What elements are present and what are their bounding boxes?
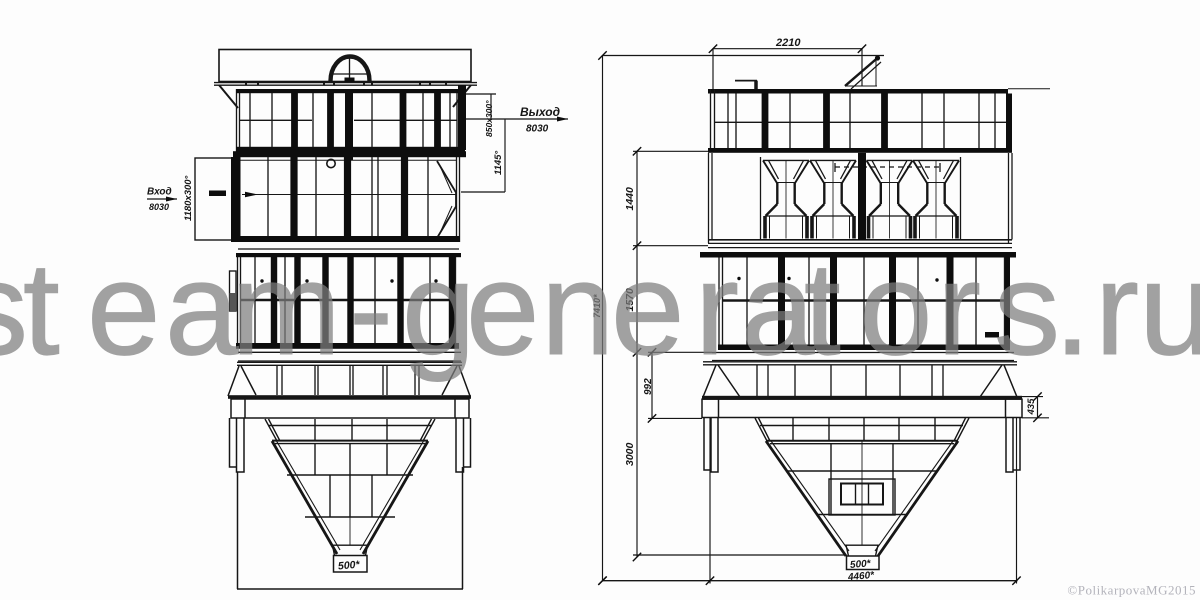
svg-text:1440: 1440 bbox=[624, 187, 636, 211]
svg-text:435: 435 bbox=[1026, 398, 1037, 416]
svg-text:©PolikarpovaMG2015: ©PolikarpovaMG2015 bbox=[1067, 583, 1196, 598]
svg-text:8030: 8030 bbox=[526, 124, 549, 135]
svg-text:1145°: 1145° bbox=[493, 151, 504, 175]
svg-text:steam-generators.ru: steam-generators.ru bbox=[0, 235, 1200, 382]
svg-text:3000: 3000 bbox=[624, 442, 636, 466]
svg-text:1180х300°: 1180х300° bbox=[183, 175, 194, 221]
svg-text:8030: 8030 bbox=[149, 202, 169, 212]
svg-text:500*: 500* bbox=[337, 559, 360, 573]
svg-text:500*: 500* bbox=[850, 558, 873, 571]
svg-text:Вход: Вход bbox=[147, 187, 172, 198]
svg-text:Выход: Выход bbox=[520, 105, 560, 119]
svg-text:850х300°: 850х300° bbox=[484, 100, 494, 137]
svg-text:2210: 2210 bbox=[775, 37, 801, 49]
